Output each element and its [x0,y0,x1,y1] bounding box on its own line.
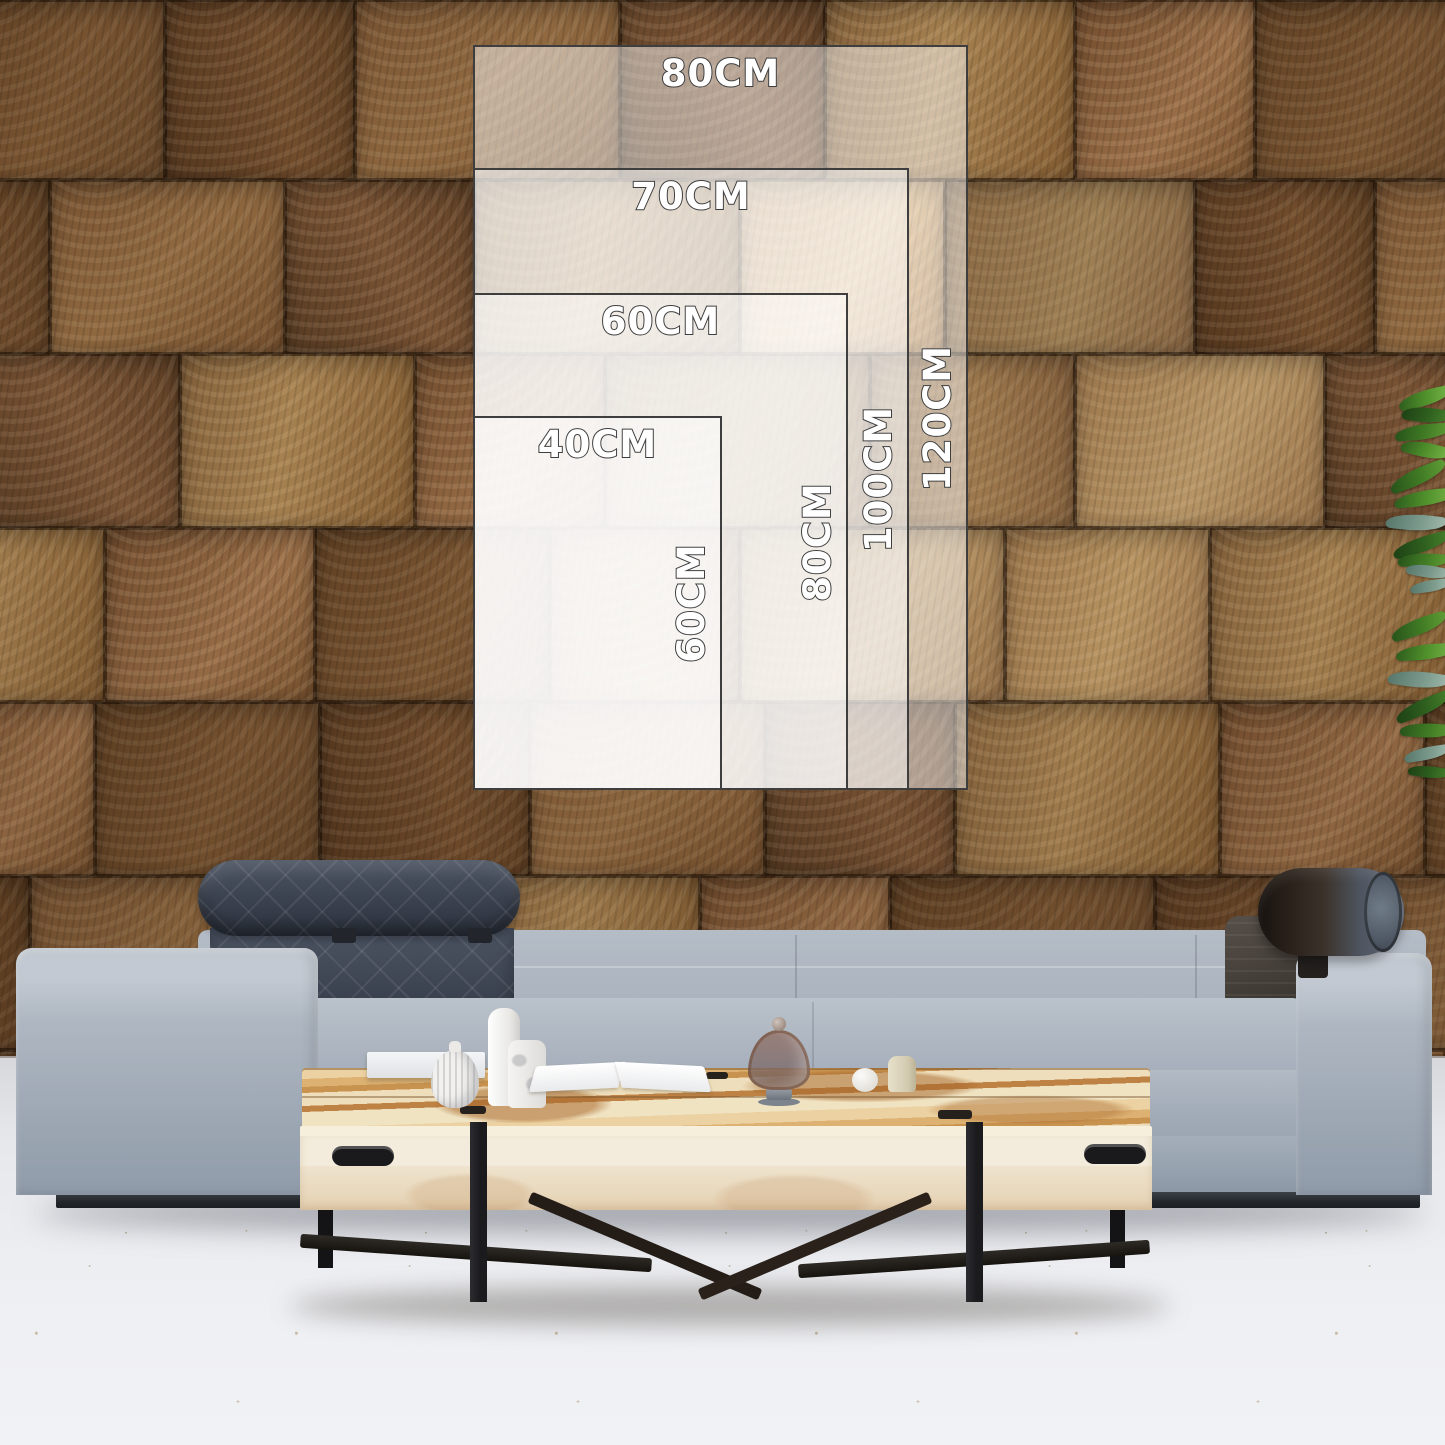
height-label: 100CM [857,406,900,552]
size-guide-scene: 80CM 120CM 70CM 100CM 60CM 80CM 40CM 60C… [0,0,1445,1445]
width-label: 70CM [475,175,907,218]
height-label: 80CM [796,482,839,601]
height-label: 60CM [670,543,713,662]
height-label: 120CM [916,344,959,490]
size-rect-40x60: 40CM 60CM [473,416,722,790]
size-overlay: 80CM 120CM 70CM 100CM 60CM 80CM 40CM 60C… [0,0,1445,1445]
width-label: 60CM [475,300,846,343]
width-label: 80CM [475,52,966,95]
width-label: 40CM [475,423,720,466]
